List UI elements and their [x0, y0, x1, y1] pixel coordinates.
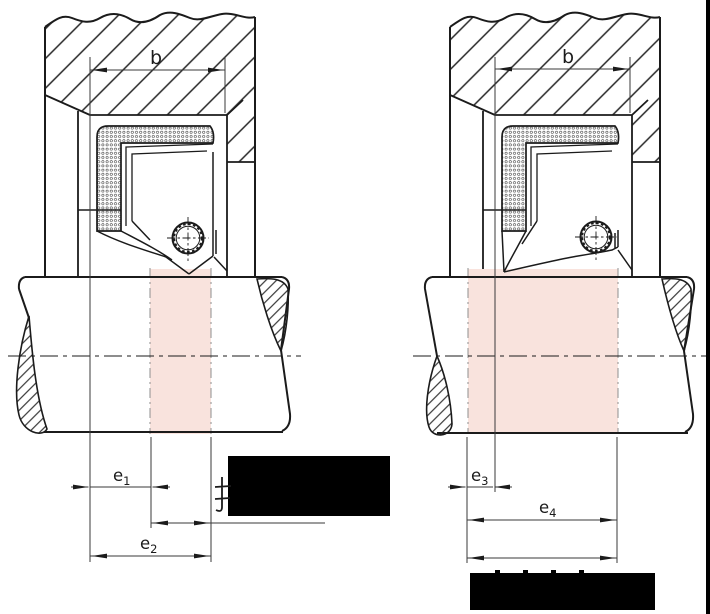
shaft-break-left: [17, 316, 47, 433]
redaction-box-right: [470, 573, 655, 610]
housing-right: [450, 13, 660, 277]
redaction-text-remnant: [523, 570, 528, 573]
dim-label-e4: e4: [539, 498, 556, 520]
technical-drawing: b e1 e2: [0, 0, 710, 614]
seal-case: [531, 144, 618, 226]
garter-spring-left: [167, 217, 209, 263]
right-figure: b e3 e4: [413, 13, 707, 610]
housing-bore: [45, 95, 255, 277]
redaction-right: [470, 570, 655, 610]
image-edge-strip: [706, 0, 710, 614]
dim-label-e1: e1: [113, 466, 130, 488]
redaction-left: [215, 456, 390, 516]
redaction-text-remnant: [495, 570, 500, 573]
contact-zone-left: [150, 269, 211, 434]
dim-label-b-right: b: [562, 46, 574, 68]
seal-left: [78, 126, 227, 274]
contact-zone-right: [468, 269, 618, 434]
seal-elastomer: [97, 126, 214, 231]
redaction-text-remnant: [551, 570, 556, 573]
housing-bore: [450, 95, 660, 277]
shaft-break-left: [427, 356, 452, 435]
shaft-right: [413, 268, 707, 435]
dim-label-e3: e3: [471, 466, 488, 488]
left-figure: b e1 e2: [8, 13, 390, 562]
seal-drawing-canvas: b e1 e2: [0, 0, 710, 614]
seal-case: [126, 144, 213, 226]
seal-elastomer: [502, 126, 619, 231]
shaft-break-right: [257, 279, 288, 351]
redaction-box-left: [228, 456, 390, 516]
dim-label-e2: e2: [140, 534, 157, 556]
shaft-left: [8, 268, 301, 434]
seal-right: [483, 126, 632, 272]
dim-label-b-left: b: [150, 47, 162, 69]
shaft-break-right: [662, 279, 691, 351]
redaction-text-remnant: [579, 570, 584, 573]
